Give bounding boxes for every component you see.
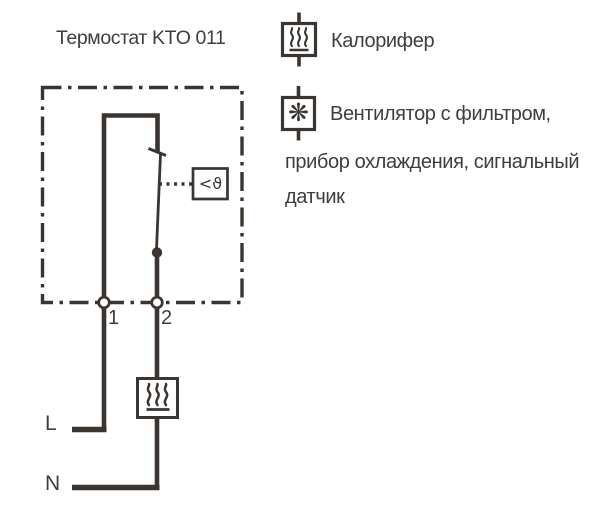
schematic-canvas (0, 0, 600, 532)
legend-fan-label-line2: прибор охлаждения, сигнальный (285, 151, 579, 174)
neutral-wire-label: N (45, 472, 60, 496)
wiring-diagram: Термостат KTO 011 <ϑ 1 2 L N ❋ Калорифер… (0, 0, 600, 532)
terminal-2-label: 2 (161, 307, 172, 330)
heater-icon (283, 13, 316, 67)
temperature-sensor-label: <ϑ (193, 169, 228, 198)
wire-terminal1-to-contact (104, 116, 158, 305)
legend-fan-label-line3: датчик (285, 186, 344, 209)
fan-blades-icon: ❋ (282, 96, 315, 129)
diagram-title: Термостат KTO 011 (56, 27, 225, 50)
legend-heater-label: Калорифер (331, 30, 434, 53)
thermostat-circuit (104, 116, 192, 381)
legend-fan-label-line1: Вентилятор с фильтром, (330, 103, 551, 126)
phase-wire-label: L (45, 412, 57, 436)
terminal-1-label: 1 (108, 307, 119, 330)
switch-lever (157, 154, 161, 249)
heater-circuit-symbol (138, 379, 178, 418)
